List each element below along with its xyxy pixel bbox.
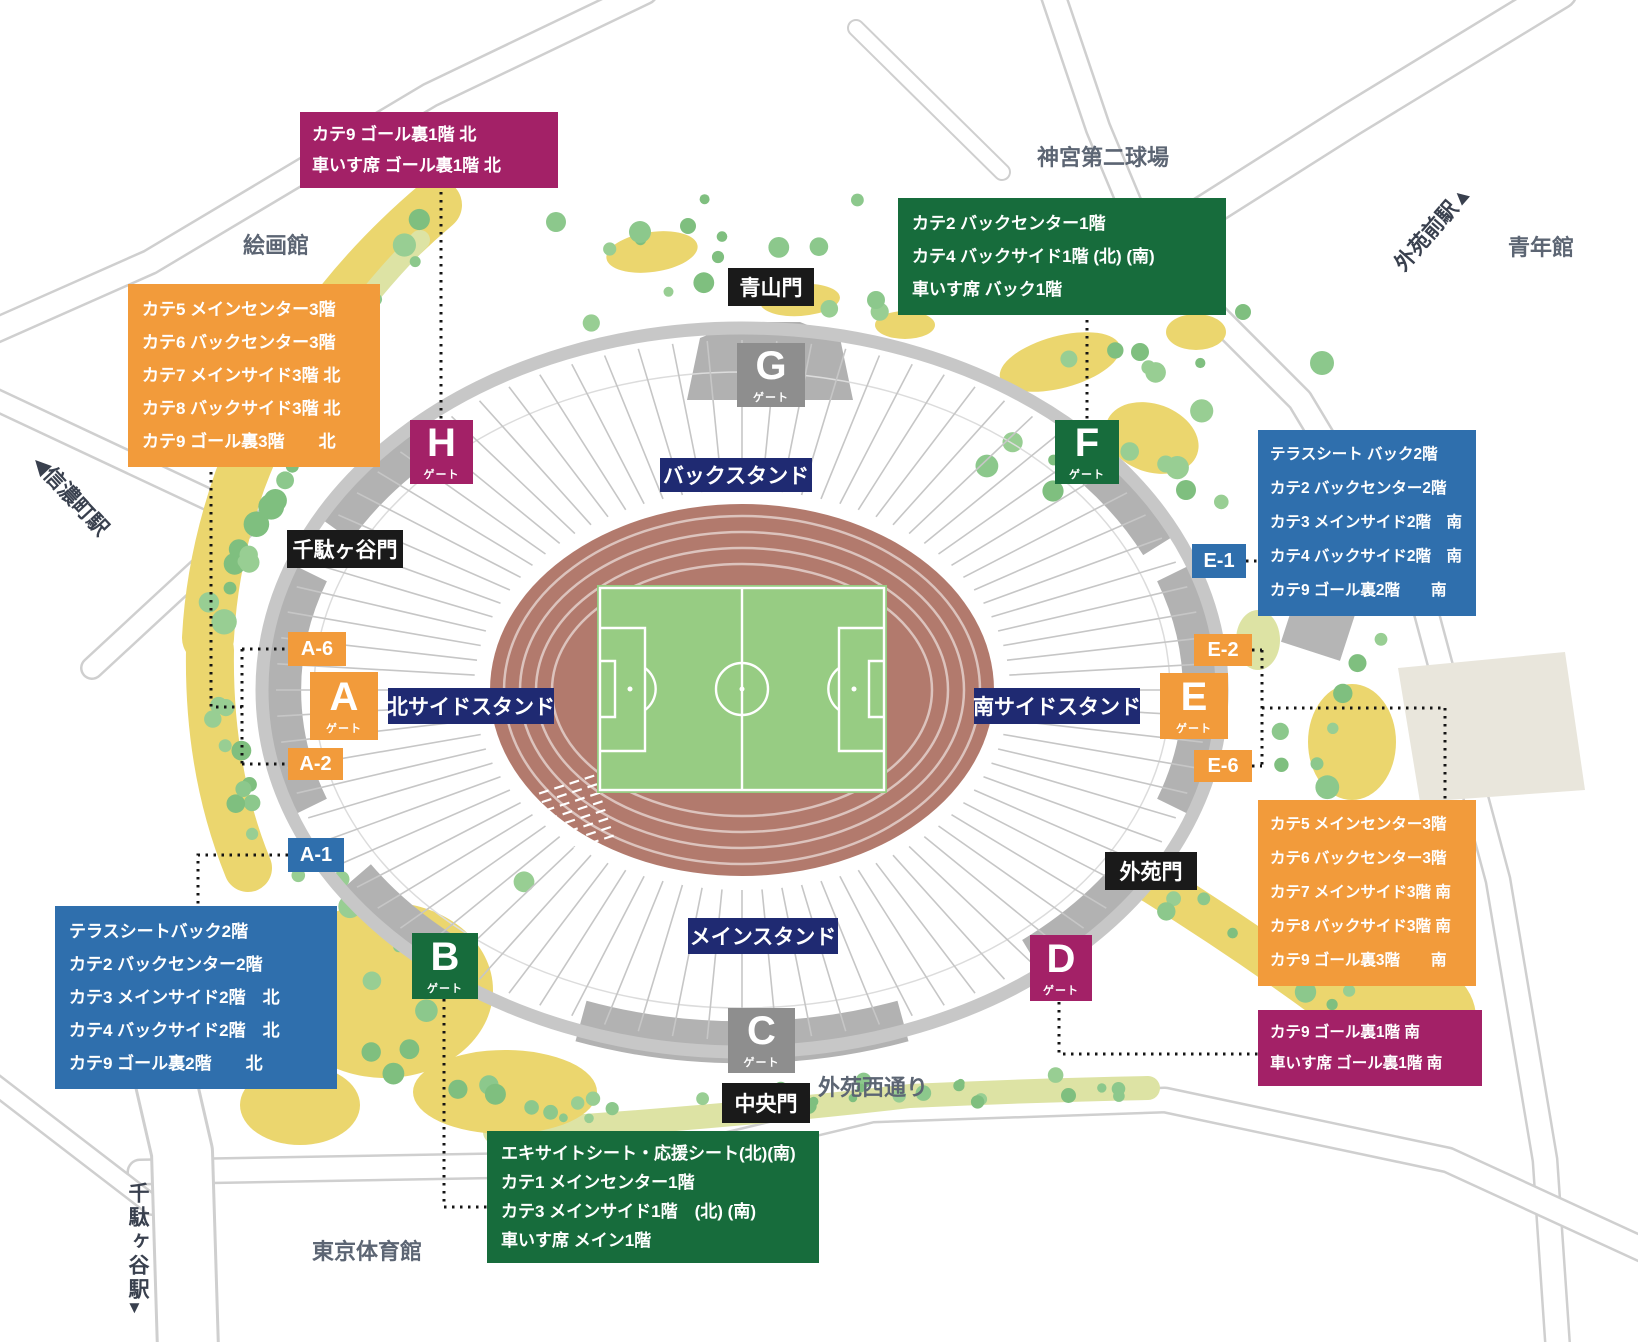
gate-word: ゲート — [744, 1054, 780, 1070]
legend-line: カテ8 バックサイド3階 南 — [1270, 910, 1464, 944]
section-e6: E-6 — [1194, 750, 1252, 782]
legend-line: カテ6 バックセンター3階 — [1270, 842, 1464, 876]
legend-line: テラスシート バック2階 — [1270, 438, 1464, 472]
legend-line: カテ5 メインセンター3階 — [1270, 808, 1464, 842]
gate-word: ゲート — [1043, 982, 1079, 998]
gate-word: ゲート — [753, 389, 789, 405]
stadium-map: カテ9 ゴール裏1階 北 車いす席 ゴール裏1階 北 カテ5 メインセンター3階… — [0, 0, 1638, 1342]
section-a6: A-6 — [288, 632, 346, 666]
legend-line: カテ9 ゴール裏2階 南 — [1270, 574, 1464, 608]
legend-line: カテ4 バックサイド2階 北 — [69, 1014, 323, 1047]
legend-line: 車いす席 バック1階 — [912, 273, 1212, 306]
gate-c: C ゲート — [728, 1008, 795, 1073]
legend-line: カテ9 ゴール裏1階 南 — [1270, 1017, 1470, 1048]
legend-line: カテ8 バックサイド3階 北 — [142, 392, 366, 425]
stand-back: バックスタンド — [660, 458, 812, 492]
gate-b: B ゲート — [412, 933, 478, 999]
stand-north-side: 北サイドスタンド — [388, 688, 554, 724]
entrance-chuo: 中央門 — [722, 1083, 810, 1123]
label-seinenkan: 青年館 — [1508, 230, 1574, 262]
gate-letter: G — [755, 346, 786, 386]
gate-word: ゲート — [1069, 466, 1105, 482]
gate-e: E ゲート — [1160, 673, 1228, 739]
gate-word: ゲート — [427, 980, 463, 996]
legend-2f-north: テラスシートバック2階 カテ2 バックセンター2階 カテ3 メインサイド2階 北… — [55, 906, 337, 1089]
legend-line: カテ3 メインサイド2階 南 — [1270, 506, 1464, 540]
legend-main-1f: エキサイトシート・応援シート(北)(南) カテ1 メインセンター1階 カテ3 メ… — [487, 1131, 819, 1263]
legend-line: カテ7 メインサイド3階 北 — [142, 359, 366, 392]
section-e1: E-1 — [1192, 544, 1246, 578]
legend-2f-south: テラスシート バック2階 カテ2 バックセンター2階 カテ3 メインサイド2階 … — [1258, 430, 1476, 616]
gate-letter: A — [330, 677, 359, 717]
legend-line: カテ7 メインサイド3階 南 — [1270, 876, 1464, 910]
gate-word: ゲート — [1176, 720, 1212, 736]
legend-line: カテ2 バックセンター2階 — [1270, 472, 1464, 506]
legend-line: カテ2 バックセンター2階 — [69, 948, 323, 981]
sendagaya-station-arrow-icon: ▼ — [126, 1298, 143, 1318]
gate-a: A ゲート — [310, 672, 378, 740]
legend-line: カテ4 バックサイド2階 南 — [1270, 540, 1464, 574]
legend-line: カテ3 メインサイド1階 (北) (南) — [501, 1197, 805, 1226]
gate-word: ゲート — [326, 720, 362, 736]
stand-main: メインスタンド — [688, 918, 838, 954]
legend-line: カテ2 バックセンター1階 — [912, 207, 1212, 240]
gate-letter: E — [1181, 677, 1208, 717]
label-sendagaya-station: 千駄ヶ谷駅 — [122, 1182, 152, 1302]
legend-line: カテ9 ゴール裏2階 北 — [69, 1047, 323, 1080]
legend-line: 車いす席 メイン1階 — [501, 1226, 805, 1255]
stadium-map-graphic — [0, 0, 1638, 1342]
legend-line: カテ6 バックセンター3階 — [142, 326, 366, 359]
gate-letter: H — [427, 423, 456, 463]
gate-d: D ゲート — [1030, 935, 1092, 1001]
legend-back-1f: カテ2 バックセンター1階 カテ4 バックサイド1階 (北) (南) 車いす席 … — [898, 198, 1226, 315]
label-kaigakan: 絵画館 — [243, 228, 309, 260]
legend-goal-back-1f-north: カテ9 ゴール裏1階 北 車いす席 ゴール裏1階 北 — [300, 112, 558, 188]
legend-line: 車いす席 ゴール裏1階 南 — [1270, 1048, 1470, 1079]
legend-line: 車いす席 ゴール裏1階 北 — [312, 150, 546, 181]
label-jingu-second-stadium: 神宮第二球場 — [1037, 140, 1169, 172]
legend-line: カテ3 メインサイド2階 北 — [69, 981, 323, 1014]
legend-3f-north: カテ5 メインセンター3階 カテ6 バックセンター3階 カテ7 メインサイド3階… — [128, 284, 380, 467]
gate-letter: C — [747, 1011, 776, 1051]
gate-letter: F — [1075, 423, 1099, 463]
gate-word: ゲート — [424, 466, 460, 482]
gate-letter: B — [431, 937, 460, 977]
label-gaien-nishi-street: 外苑西通り — [818, 1070, 928, 1102]
legend-line: カテ4 バックサイド1階 (北) (南) — [912, 240, 1212, 273]
gate-f: F ゲート — [1055, 420, 1119, 484]
legend-3f-south: カテ5 メインセンター3階 カテ6 バックセンター3階 カテ7 メインサイド3階… — [1258, 800, 1476, 986]
gate-h: H ゲート — [410, 420, 473, 484]
legend-line: カテ9 ゴール裏3階 北 — [142, 425, 366, 458]
legend-line: エキサイトシート・応援シート(北)(南) — [501, 1139, 805, 1168]
legend-line: テラスシートバック2階 — [69, 915, 323, 948]
legend-line: カテ9 ゴール裏3階 南 — [1270, 944, 1464, 978]
gate-letter: D — [1047, 939, 1076, 979]
section-a1: A-1 — [288, 838, 344, 872]
legend-line: カテ1 メインセンター1階 — [501, 1168, 805, 1197]
gate-g: G ゲート — [737, 343, 805, 407]
entrance-aoyama: 青山門 — [728, 268, 814, 306]
entrance-sendagaya: 千駄ヶ谷門 — [287, 530, 403, 568]
legend-line: カテ5 メインセンター3階 — [142, 293, 366, 326]
section-e2: E-2 — [1194, 634, 1252, 666]
legend-line: カテ9 ゴール裏1階 北 — [312, 119, 546, 150]
section-a2: A-2 — [288, 748, 343, 780]
entrance-gaien: 外苑門 — [1105, 852, 1197, 890]
label-tokyo-gymnasium: 東京体育館 — [312, 1234, 422, 1266]
legend-goal-back-1f-south: カテ9 ゴール裏1階 南 車いす席 ゴール裏1階 南 — [1258, 1010, 1482, 1086]
stand-south-side: 南サイドスタンド — [974, 688, 1140, 724]
